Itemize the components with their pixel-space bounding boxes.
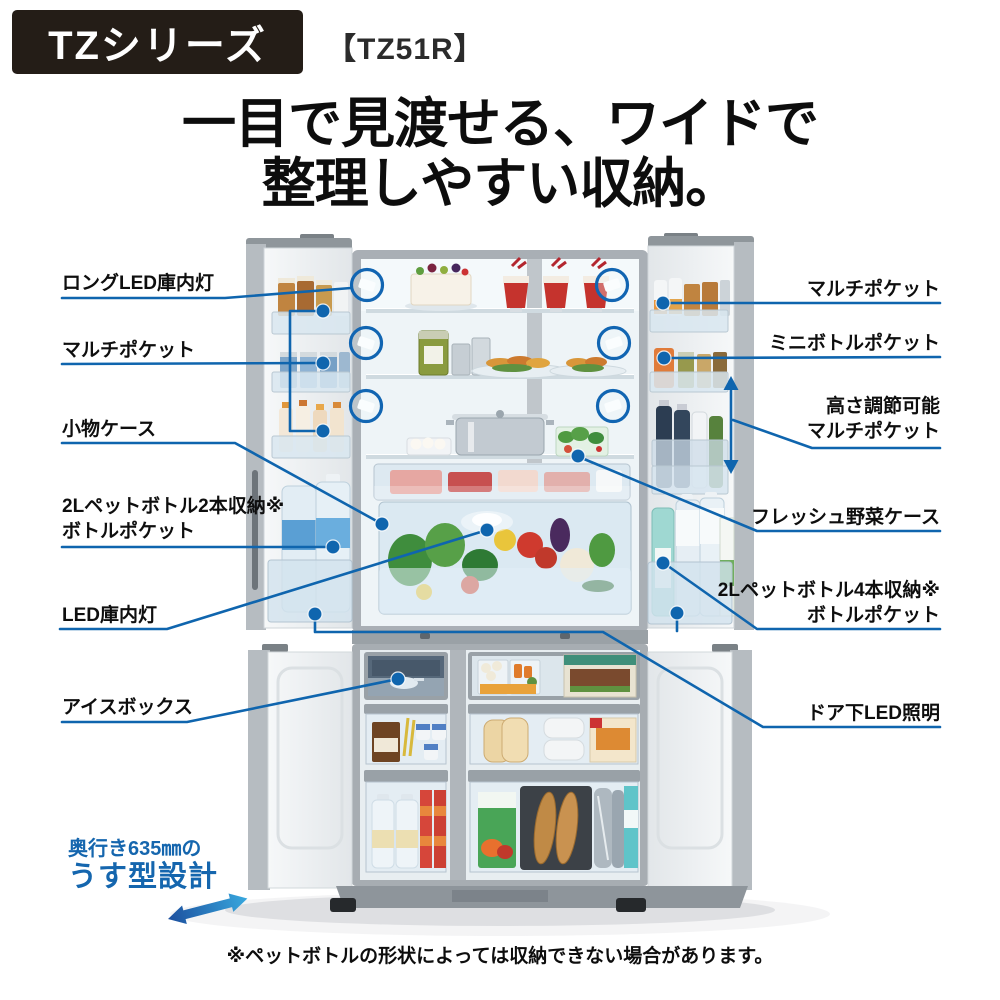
callout-label-bottle-pocket-2l-4: 2Lペットボトル4本収納※ ボトルポケット [718,578,940,628]
callout-dot-2l-2 [326,540,340,554]
slim-design-line2: うす型設計 [68,862,218,894]
led-circle [598,391,629,422]
callout-line-mini-bottle [671,357,940,358]
callout-dot-multi-1 [316,304,330,318]
footnote: ※ペットボトルの形状によっては収納できない場合があります。 [0,941,1000,968]
callout-dot-small-case [375,517,389,531]
callout-label-ice-box: アイスボックス [62,695,193,720]
callout-label-height-adjustable-pocket: 高さ調節可能 マルチポケット [807,394,940,444]
callout-dot-door-led-left [308,607,322,621]
callout-dot-fresh-veg [571,449,585,463]
callout-label-long-led: ロングLED庫内灯 [62,271,214,296]
slim-design-line1: 奥行き635㎜の [68,838,218,860]
callout-label-bottle-pocket-2l-2: 2Lペットボトル2本収納※ ボトルポケット [62,494,284,544]
led-circle [599,328,630,359]
callout-label-door-bottom-led: ドア下LED照明 [807,701,940,726]
callout-label-multi-pocket-right: マルチポケット [807,277,940,302]
frozen-bottle-drawer [364,770,448,872]
callout-dot-mini-bottle [657,351,671,365]
callout-label-led-interior: LED庫内灯 [62,603,157,628]
vegetable-crisper [379,502,631,614]
callout-dot-multi-3 [316,424,330,438]
callout-dot-multi-right [656,296,670,310]
callout-line-multi-left [62,363,317,364]
led-circle [351,328,382,359]
callout-label-multi-pocket-left: マルチポケット [62,338,195,363]
freezer-left-door [248,644,352,890]
led-circle [351,391,382,422]
callout-dot-2l-4 [656,556,670,570]
ice-cream-drawer [364,704,448,764]
ice-box-drawer [364,652,448,700]
freezer-compartment [248,644,752,912]
door-pocket-jars [272,276,350,334]
chilled-drawer [374,464,630,500]
slim-design-note: 奥行き635㎜の うす型設計 [68,838,218,894]
led-circle [352,270,383,301]
frozen-bakery-drawer [468,770,640,872]
page: TZシリーズ 【TZ51R】 一目で見渡せる、ワイドで 整理しやすい収納。 [0,0,1000,1000]
callout-dot-multi-2 [316,356,330,370]
callout-dot-icebox [391,672,405,686]
callout-dot-door-led-right [670,606,684,620]
cooking-pot [446,410,554,455]
egg-tray [407,438,451,456]
callout-label-fresh-vegetable-case: フレッシュ野菜ケース [751,505,940,530]
callout-label-small-item-case: 小物ケース [62,417,156,442]
frozen-bread-drawer [468,704,640,764]
callout-dot-led-interior [480,523,494,537]
frozen-vegetable-drawer [468,652,640,700]
led-circle [597,270,628,301]
freezer-right-door [648,644,752,890]
callout-label-mini-bottle-pocket: ミニボトルポケット [769,331,940,356]
